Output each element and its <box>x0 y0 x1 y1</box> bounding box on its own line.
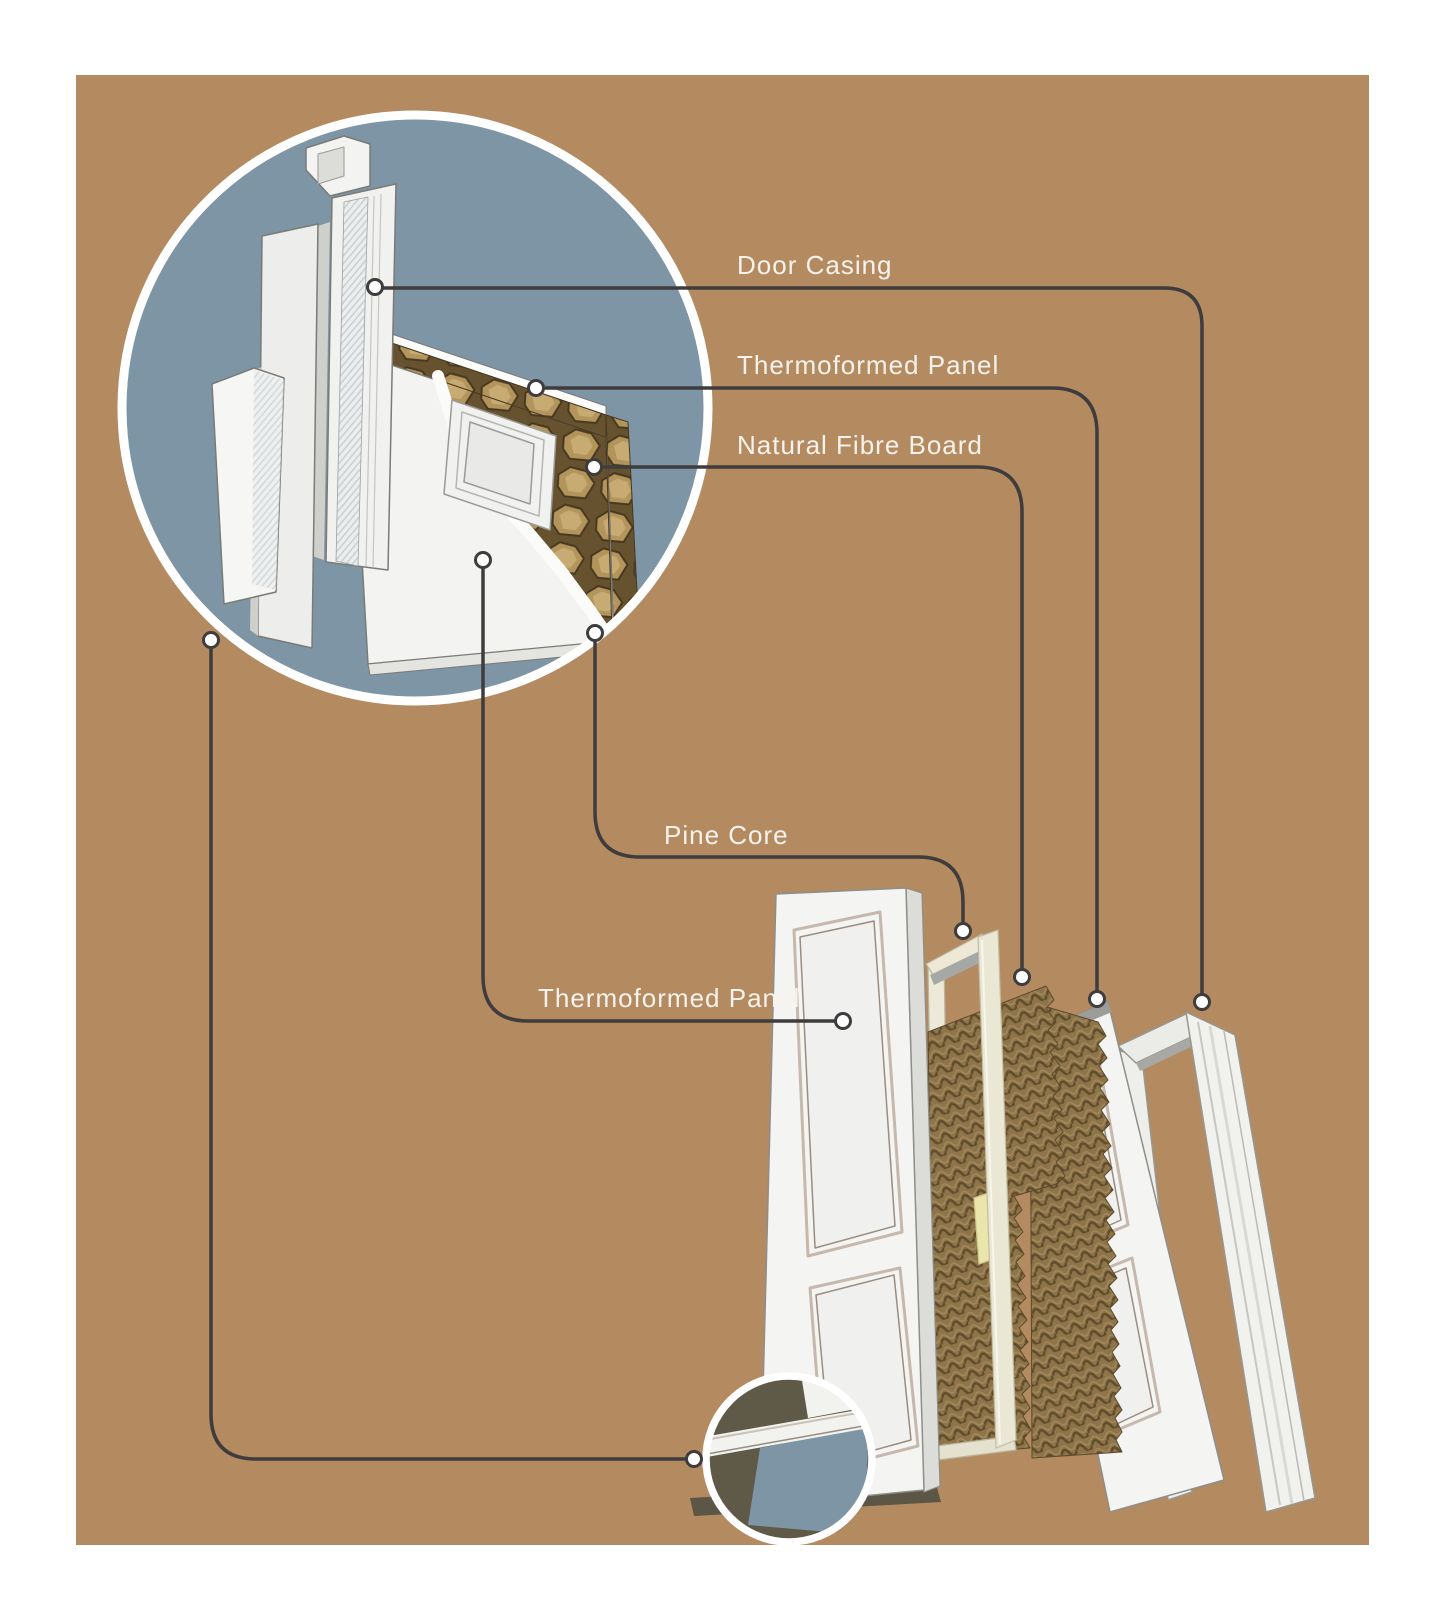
connector-dot <box>476 553 491 568</box>
connector-dot <box>956 924 971 939</box>
diagram-canvas <box>0 0 1445 1620</box>
cutaway-detail-circle <box>122 115 708 701</box>
connector-dot <box>1195 995 1210 1010</box>
connector-dot <box>1015 970 1030 985</box>
label-door-casing: Door Casing <box>737 250 893 281</box>
connector-dot <box>587 460 602 475</box>
label-pine-core: Pine Core <box>664 820 789 851</box>
connector-dot <box>588 626 603 641</box>
connector-dot <box>687 1452 702 1467</box>
connector-dot <box>368 280 383 295</box>
connector-dot <box>1090 992 1105 1007</box>
label-natural-fibre-board: Natural Fibre Board <box>737 430 983 461</box>
connector-dot <box>204 633 219 648</box>
label-thermoformed-panel-bottom: Thermoformed Panel <box>538 983 800 1014</box>
connector-dot <box>529 381 544 396</box>
connector-dot <box>836 1014 851 1029</box>
door-construction-diagram: Door Casing Thermoformed Panel Natural F… <box>0 0 1445 1620</box>
label-thermoformed-panel-top: Thermoformed Panel <box>737 350 999 381</box>
